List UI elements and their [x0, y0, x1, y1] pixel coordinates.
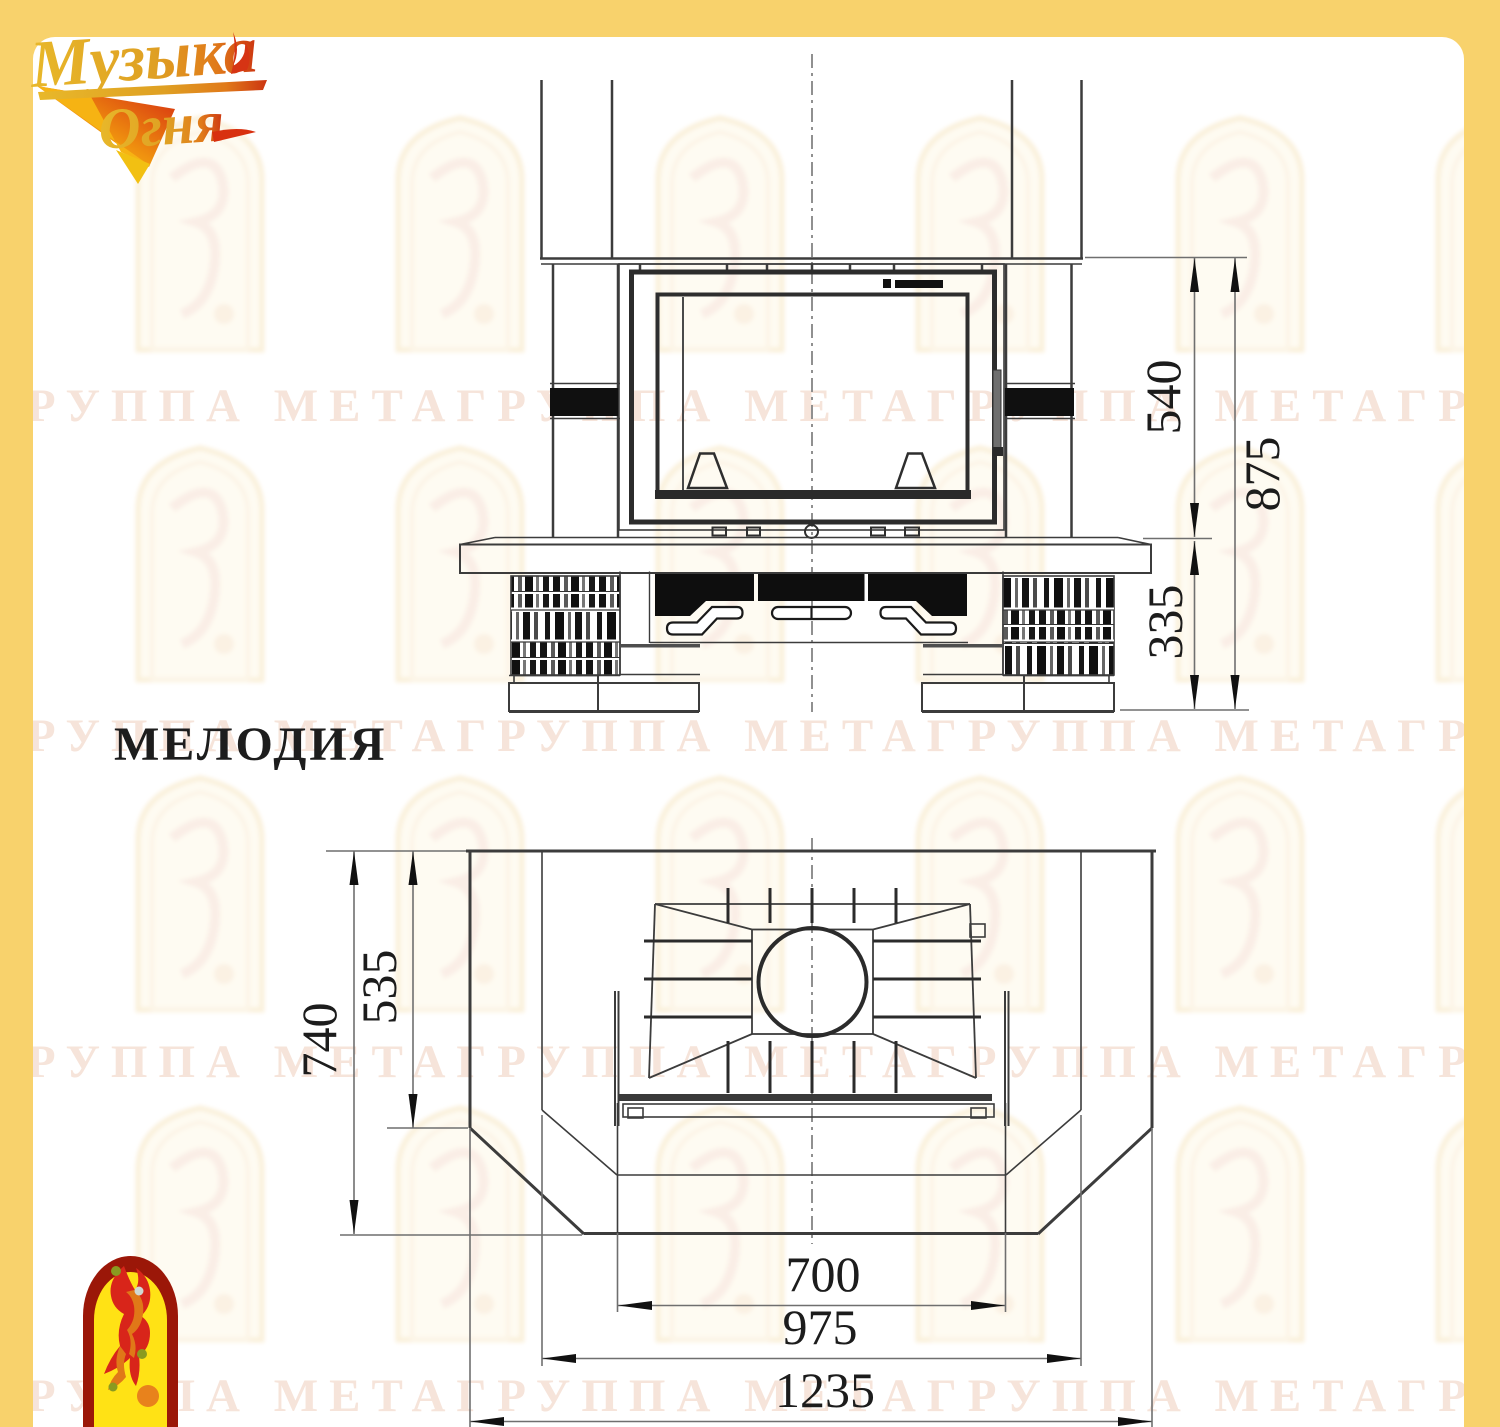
- svg-text:700: 700: [786, 1246, 861, 1302]
- svg-text:335: 335: [1137, 585, 1193, 660]
- svg-text:540: 540: [1135, 360, 1191, 435]
- svg-text:1235: 1235: [775, 1362, 875, 1418]
- svg-text:740: 740: [291, 1003, 347, 1078]
- svg-text:Огня: Огня: [96, 88, 226, 162]
- svg-text:535: 535: [351, 950, 407, 1025]
- svg-text:875: 875: [1234, 437, 1290, 512]
- svg-text:975: 975: [783, 1299, 858, 1355]
